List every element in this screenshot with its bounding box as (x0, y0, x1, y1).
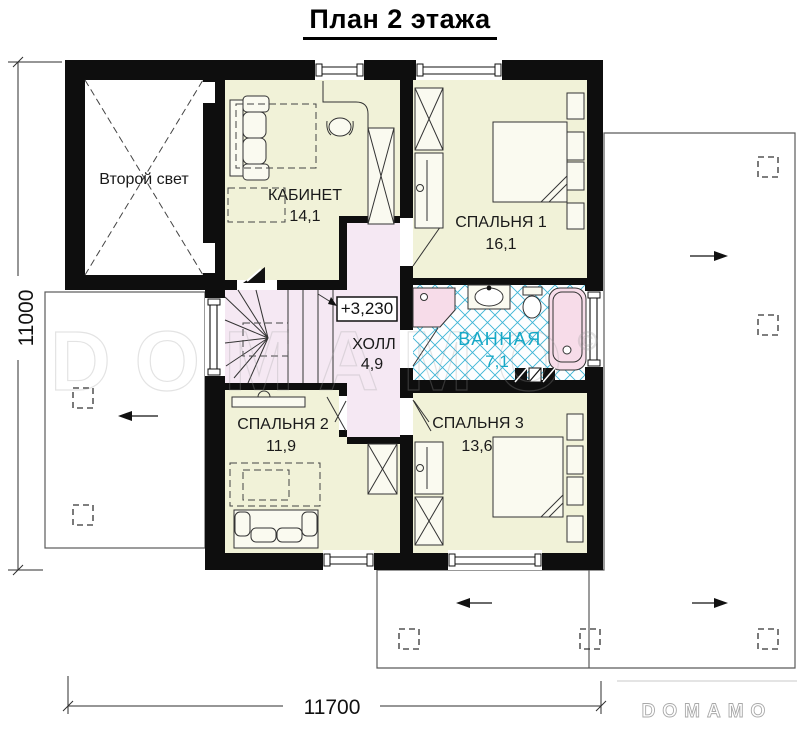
svg-text:©: © (578, 326, 597, 356)
room-label-office: КАБИНЕТ (268, 187, 342, 204)
wall-niche (203, 82, 215, 103)
dresser-icon (415, 153, 443, 228)
dresser-icon (415, 442, 443, 494)
window-bottom-2 (448, 550, 542, 570)
sofa-icon (234, 510, 318, 548)
page-title: План 2 этажа (0, 4, 800, 40)
room-label-bedroom1: СПАЛЬНЯ 1 (455, 214, 547, 231)
room-label-bathroom: ВАННАЯ (458, 329, 541, 349)
wardrobe-icon (415, 88, 443, 150)
dimension-bottom: 11700 (63, 676, 606, 719)
wardrobe-icon (415, 497, 443, 545)
wardrobe-icon (368, 128, 394, 224)
window-bottom-1 (323, 550, 374, 570)
dimension-height-label: 11000 (15, 290, 38, 347)
floor-plan-page: План 2 этажа (0, 0, 800, 732)
room-area-bedroom3: 13,6 (461, 438, 492, 455)
wardrobe-icon (368, 444, 397, 494)
room-area-hall: 4,9 (361, 356, 383, 373)
room-label-bedroom3: СПАЛЬНЯ 3 (432, 415, 524, 432)
room-area-bedroom2: 11,9 (266, 438, 296, 455)
brand-logo-text: DOMAMO (642, 701, 773, 722)
room-area-office: 14,1 (289, 208, 320, 225)
page-title-text: План 2 этажа (303, 4, 496, 40)
room-area-bedroom1: 16,1 (485, 236, 516, 253)
window-top-1 (315, 60, 364, 80)
sink-icon (468, 285, 510, 309)
wall-under-hall (347, 437, 400, 444)
brand-logo: DOMAMO (617, 681, 797, 722)
dimension-width-label: 11700 (304, 696, 361, 719)
floor-plan-drawing: 11000 11700 (0, 0, 800, 732)
room-label-hall: ХОЛЛ (352, 336, 395, 353)
room-label-void: Второй свет (99, 171, 189, 188)
room-label-bedroom2: СПАЛЬНЯ 2 (237, 416, 329, 433)
room-area-bathroom: 7,1 (485, 352, 509, 371)
wall-niche (203, 243, 215, 273)
window-top-2 (416, 60, 502, 80)
